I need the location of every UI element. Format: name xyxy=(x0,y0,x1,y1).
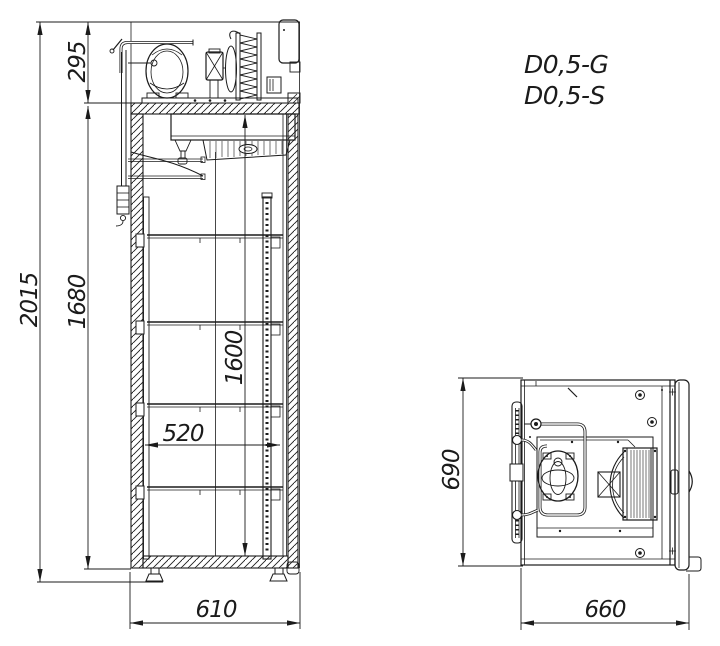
dim-top-width: 660 xyxy=(521,597,689,626)
fan-condenser-top-view xyxy=(598,448,657,520)
dim-body-height-label: 1680 xyxy=(65,274,91,329)
dim-overall-height: 2015 xyxy=(17,22,43,582)
side-view: 2015 295 1680 1600 xyxy=(17,20,300,629)
dim-top-depth-label: 690 xyxy=(439,449,465,490)
shelf-3 xyxy=(136,403,283,417)
model-label-2: D0,5-S xyxy=(524,81,606,110)
rear-panel xyxy=(279,20,300,72)
dim-interior-depth: 520 xyxy=(145,421,280,448)
thermostat-box xyxy=(116,186,129,226)
compressor-frame-tube xyxy=(121,40,193,74)
shelf-4 xyxy=(136,486,283,500)
dim-top-depth: 690 xyxy=(439,378,466,566)
condenser-coil xyxy=(230,31,261,100)
shelf-rails xyxy=(144,193,273,559)
shelf-2 xyxy=(136,321,283,335)
electrical-box xyxy=(267,77,281,93)
shelves xyxy=(136,234,283,500)
dim-overall-depth: 610 xyxy=(130,597,300,626)
door-bottom-hinge xyxy=(686,557,701,571)
compressor xyxy=(128,44,188,98)
model-label-1: D0,5-G xyxy=(524,50,609,79)
door-top-view xyxy=(671,380,701,571)
dim-interior-height-label: 1600 xyxy=(222,330,248,385)
top-view: 690 660 xyxy=(439,378,701,630)
dim-overall-depth-label: 610 xyxy=(196,597,237,623)
evaporator-unit xyxy=(171,114,295,164)
model-labels: D0,5-G D0,5-S xyxy=(524,50,609,110)
shelf-1 xyxy=(136,234,283,248)
compressor-top-view xyxy=(538,451,578,501)
refrigerated-cabinet-drawing: 2015 295 1680 1600 xyxy=(0,0,720,646)
technical-drawing-page: 2015 295 1680 1600 xyxy=(0,0,720,646)
dim-body-height: 1680 xyxy=(65,106,91,569)
dim-machinery-height: 295 xyxy=(65,22,91,103)
dim-machinery-height-label: 295 xyxy=(65,41,91,82)
dim-overall-height-label: 2015 xyxy=(17,272,43,327)
condenser-fan-motor xyxy=(206,46,237,98)
dim-top-width-label: 660 xyxy=(585,597,626,623)
cabinet-walls xyxy=(131,103,299,568)
dim-interior-depth-label: 520 xyxy=(163,421,204,447)
